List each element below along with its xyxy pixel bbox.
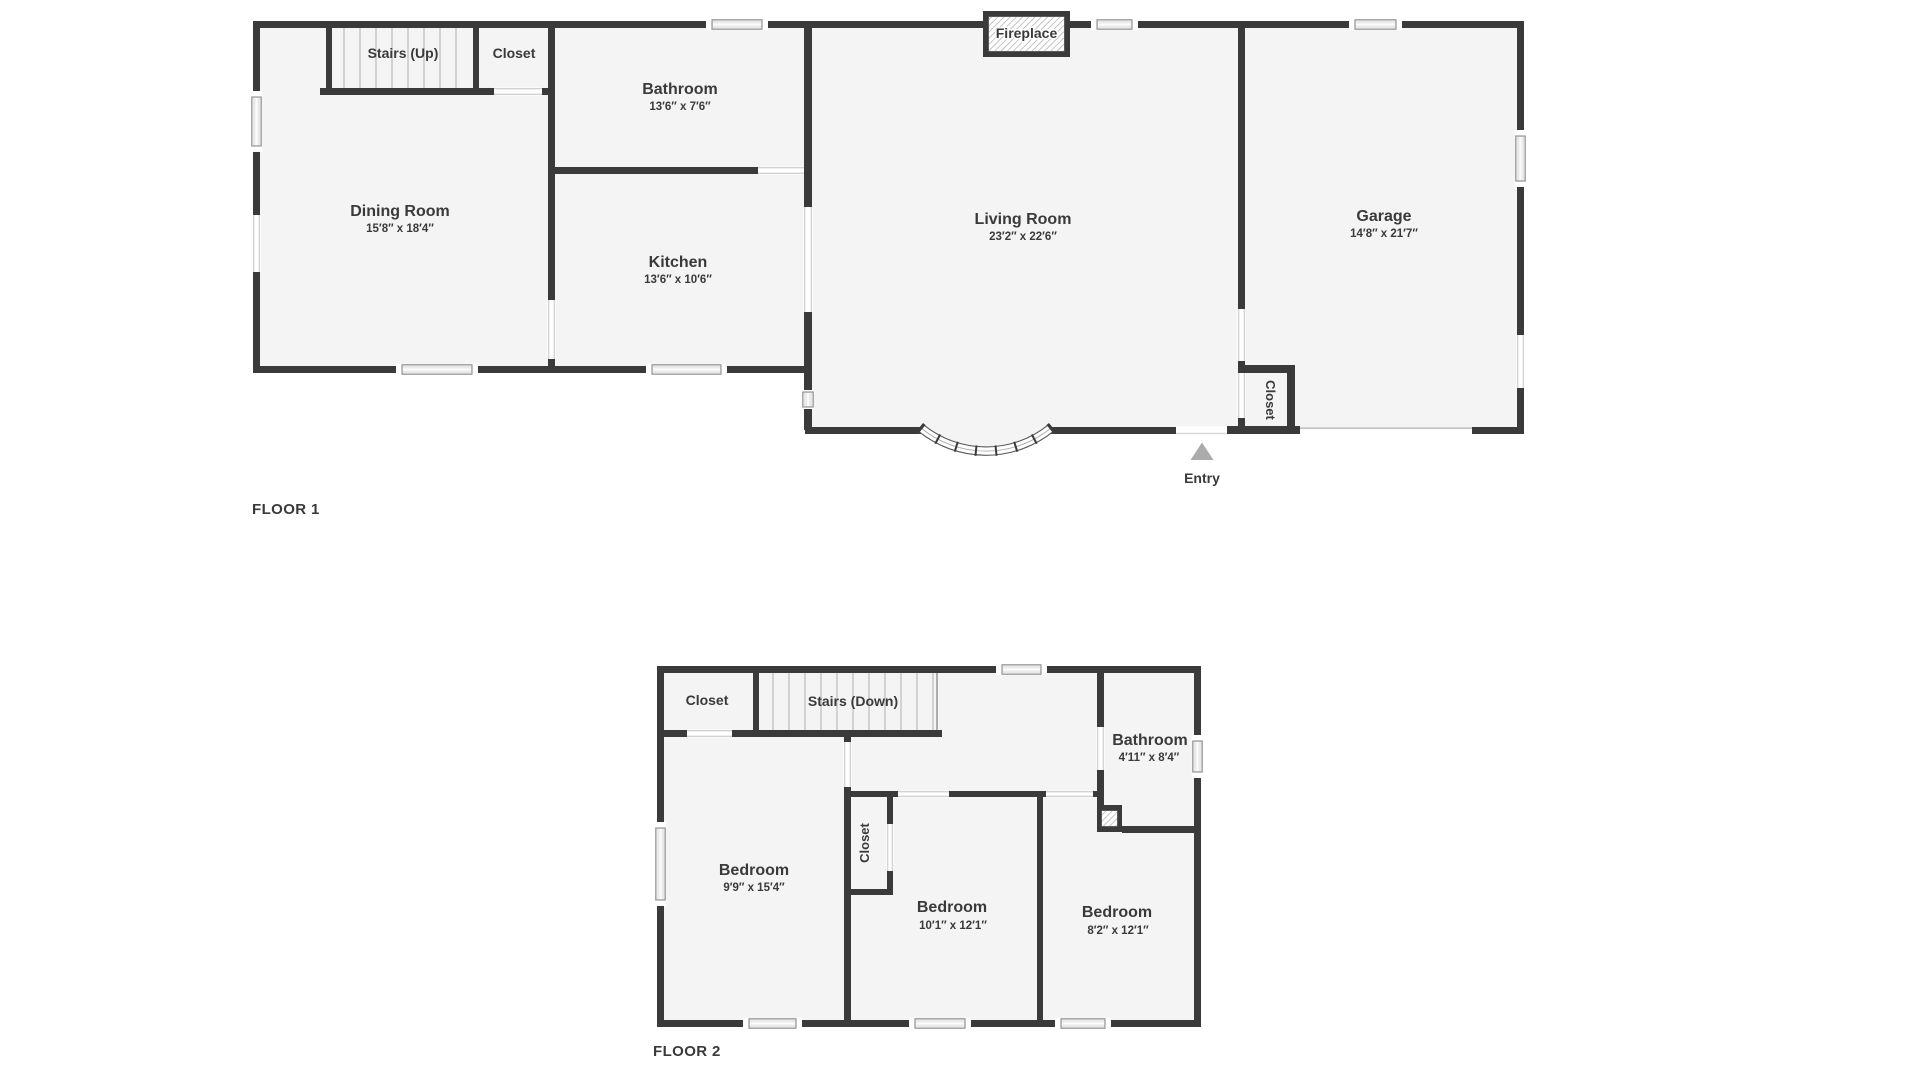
svg-text:Stairs (Up): Stairs (Up) (368, 45, 439, 61)
svg-text:14′8″ x 21′7″: 14′8″ x 21′7″ (1350, 228, 1418, 240)
svg-text:Closet: Closet (686, 692, 729, 708)
svg-text:Kitchen: Kitchen (649, 254, 708, 271)
svg-text:Dining Room: Dining Room (350, 203, 450, 220)
svg-text:FLOOR 1: FLOOR 1 (252, 501, 320, 518)
svg-text:Garage: Garage (1356, 208, 1411, 225)
svg-text:Bathroom: Bathroom (1112, 732, 1188, 749)
svg-text:Fireplace: Fireplace (996, 25, 1058, 41)
svg-text:9′9″ x 15′4″: 9′9″ x 15′4″ (723, 882, 785, 894)
svg-text:10′1″ x 12′1″: 10′1″ x 12′1″ (919, 920, 987, 932)
svg-text:FLOOR 2: FLOOR 2 (653, 1043, 721, 1060)
svg-text:Bedroom: Bedroom (1082, 904, 1152, 921)
svg-text:13′6″ x 7′6″: 13′6″ x 7′6″ (649, 101, 711, 113)
svg-text:Stairs (Down): Stairs (Down) (808, 693, 898, 709)
svg-text:4′11″ x 8′4″: 4′11″ x 8′4″ (1119, 752, 1180, 764)
svg-text:Bedroom: Bedroom (917, 899, 987, 916)
svg-text:Closet: Closet (493, 45, 536, 61)
svg-text:15′8″ x 18′4″: 15′8″ x 18′4″ (366, 223, 434, 235)
svg-text:Bathroom: Bathroom (642, 81, 718, 98)
svg-text:13′6″ x 10′6″: 13′6″ x 10′6″ (644, 274, 712, 286)
svg-text:23′2″ x 22′6″: 23′2″ x 22′6″ (989, 231, 1057, 243)
svg-text:Closet: Closet (857, 822, 872, 862)
svg-text:Living Room: Living Room (975, 211, 1072, 228)
svg-text:Bedroom: Bedroom (719, 862, 789, 879)
svg-text:8′2″ x 12′1″: 8′2″ x 12′1″ (1087, 925, 1149, 937)
svg-text:Closet: Closet (1263, 380, 1278, 420)
svg-text:Entry: Entry (1184, 470, 1220, 486)
